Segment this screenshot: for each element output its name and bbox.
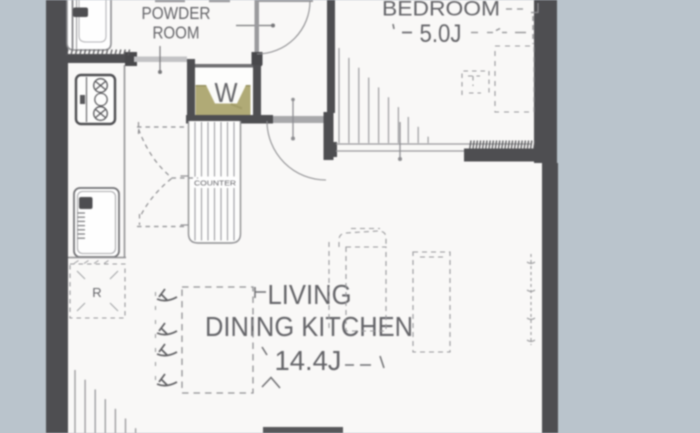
svg-text:COUNTER: COUNTER bbox=[194, 179, 237, 188]
svg-text:R: R bbox=[92, 285, 101, 300]
svg-text:14.4J: 14.4J bbox=[275, 345, 342, 376]
svg-text:LIVING: LIVING bbox=[268, 279, 352, 310]
svg-text:5.0J: 5.0J bbox=[420, 20, 462, 48]
svg-text:DINING KITCHEN: DINING KITCHEN bbox=[205, 311, 413, 342]
svg-text:ROOM: ROOM bbox=[153, 23, 200, 43]
svg-text:W: W bbox=[215, 77, 238, 108]
svg-text:POWDER: POWDER bbox=[142, 3, 211, 23]
svg-text:BEDROOM: BEDROOM bbox=[382, 0, 500, 21]
